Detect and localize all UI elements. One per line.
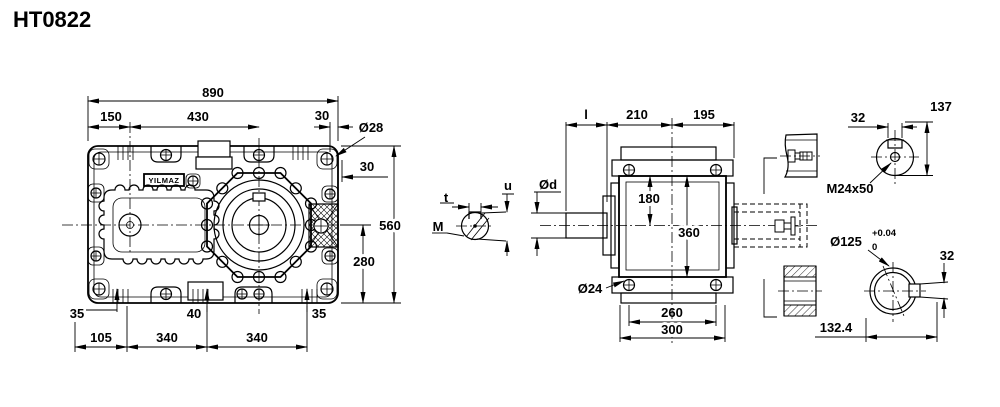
dim-bore-dia: Ø125 xyxy=(830,234,862,249)
dim-key-width: t xyxy=(444,190,449,205)
clamp-block xyxy=(309,204,338,247)
dim-total-height: 560 xyxy=(379,218,401,233)
output-keyway xyxy=(253,193,265,201)
dim-bolt-hole-dia: Ø28 xyxy=(359,120,384,135)
dim-axis-distance: 430 xyxy=(187,109,209,124)
dim-base-width: 300 xyxy=(661,322,683,337)
dim-bolt-span: 260 xyxy=(661,305,683,320)
side-bolts xyxy=(624,165,722,291)
dim-axis-height: 280 xyxy=(353,254,375,269)
dim-bore-tol-plus: +0.04 xyxy=(872,228,897,239)
dim-left-axis-offset: 150 xyxy=(100,109,122,124)
dim-end-offset: 132.4 xyxy=(820,320,853,335)
side-dimensions: l 210 195 180 360 Ø24 260 300 Ød xyxy=(531,107,734,342)
dim-rear-depth: 195 xyxy=(693,107,715,122)
dim-front-depth: 210 xyxy=(626,107,648,122)
dim-foot-offset: 105 xyxy=(90,330,112,345)
brand-label: YILMAZ xyxy=(149,176,180,185)
gearbox-dimension-sheet: HT0822 xyxy=(0,0,1000,407)
dim-center-thread-size: M24x50 xyxy=(827,181,874,196)
dim-foot-rib-right: 35 xyxy=(312,306,326,321)
dim-shaft-height: 137 xyxy=(930,99,952,114)
input-shaft-section: t u M xyxy=(432,178,514,256)
front-dimensions: 890 150 430 30 Ø28 30 560 280 xyxy=(70,85,401,352)
hollow-bore-view xyxy=(864,262,926,322)
dim-bore-tol-minus: 0 xyxy=(872,242,877,253)
dim-key-width-top: 32 xyxy=(851,110,865,125)
lifting-lug-base xyxy=(196,157,232,169)
dim-total-width: 890 xyxy=(202,85,224,100)
detail-reference-brackets xyxy=(764,158,777,317)
lifting-lug xyxy=(198,141,230,157)
front-view: YILMAZ xyxy=(62,85,401,352)
output-end-details: 32 137 M24x50 Ø125 +0.04 0 xyxy=(778,99,954,342)
dim-side-bolt-offset: 30 xyxy=(360,159,374,174)
dim-housing-height: 360 xyxy=(678,225,700,240)
dim-key-width-side: 32 xyxy=(940,248,954,263)
dim-foot-span-2: 340 xyxy=(246,330,268,345)
side-view: l 210 195 180 360 Ø24 260 300 Ød xyxy=(531,107,818,345)
retaining-bolt xyxy=(775,217,801,235)
dim-foot-rib-mid: 40 xyxy=(187,306,201,321)
dim-top-bolt-offset: 30 xyxy=(315,108,329,123)
end-cover-piece xyxy=(780,134,820,177)
dim-center-thread: M xyxy=(433,219,444,234)
solid-shaft-end-view xyxy=(871,130,919,186)
dim-shaft-dia: Ød xyxy=(539,177,557,192)
dim-foot-span-1: 340 xyxy=(156,330,178,345)
technical-drawing: HT0822 xyxy=(0,0,1000,407)
page-title: HT0822 xyxy=(13,7,91,32)
dim-key-height: u xyxy=(504,178,512,193)
dim-foot-hole-dia: Ø24 xyxy=(578,281,603,296)
dim-top-to-axis: 180 xyxy=(638,191,660,206)
hollow-shaft-section xyxy=(778,266,822,316)
dim-shaft-length: l xyxy=(584,107,588,122)
dim-foot-rib-left: 35 xyxy=(70,306,84,321)
